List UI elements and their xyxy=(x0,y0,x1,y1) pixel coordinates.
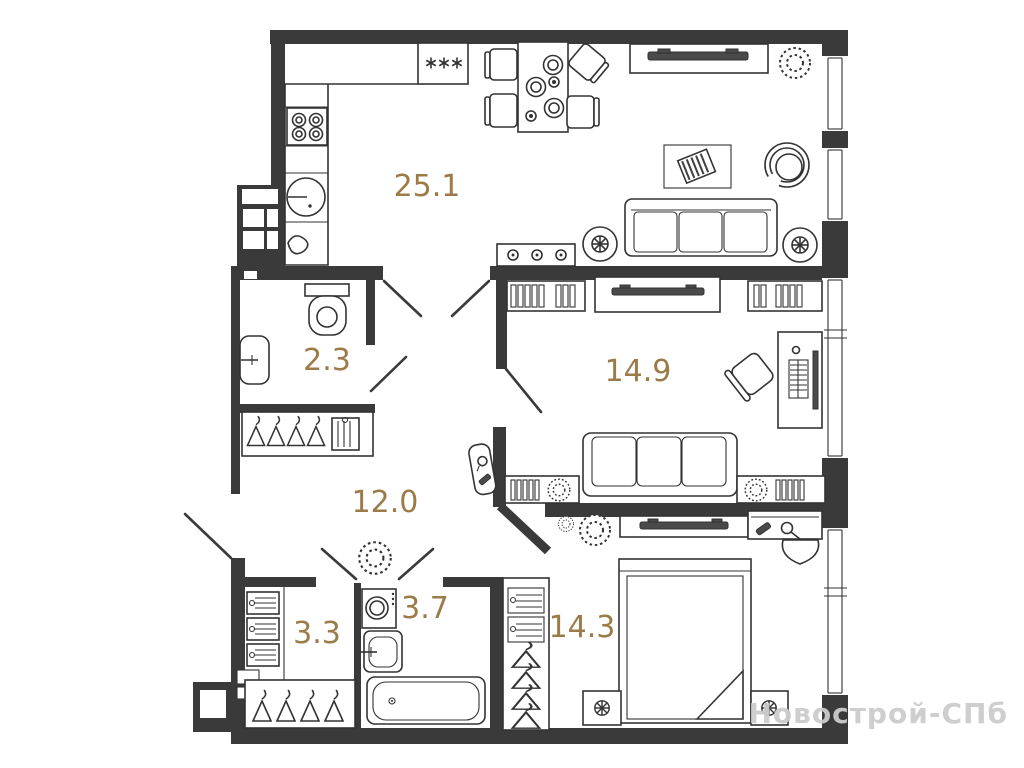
plant-icon xyxy=(580,515,610,545)
window xyxy=(823,528,848,695)
shelf-box-icon xyxy=(508,617,544,642)
tv-cabinet-icon xyxy=(595,277,720,312)
plant-icon xyxy=(559,517,574,532)
shelf-box-icon xyxy=(508,588,544,613)
plant-icon xyxy=(745,479,767,501)
hanger-rail xyxy=(245,680,355,728)
windows xyxy=(823,56,848,695)
sideboard-icon xyxy=(497,244,575,266)
stove-icon xyxy=(287,108,327,145)
sofa-icon xyxy=(583,433,737,496)
watermark: Новострой-СПб xyxy=(748,697,1008,730)
sink-icon xyxy=(240,336,269,384)
tv-cabinet-icon xyxy=(630,44,768,73)
shelf-box-icon xyxy=(247,592,279,614)
room-label-bathroom-small: 2.3 xyxy=(303,343,351,378)
chair-icon xyxy=(485,94,517,127)
keyboard-icon xyxy=(789,360,808,398)
plant-icon xyxy=(780,48,810,78)
bathtub-icon xyxy=(367,677,485,724)
desk-icon xyxy=(778,332,822,428)
shelf-box-icon xyxy=(247,618,279,640)
window xyxy=(823,56,848,131)
entry-closet xyxy=(242,412,373,456)
room-label-hallway: 12.0 xyxy=(352,485,419,520)
wardrobe-icon xyxy=(503,578,549,730)
dressing-table-icon xyxy=(748,511,822,539)
monitor-icon xyxy=(813,351,818,409)
side-table-icon xyxy=(583,227,617,261)
room-label-bedroom: 14.9 xyxy=(605,354,672,389)
bed-icon xyxy=(619,559,751,723)
bookshelf-icon xyxy=(748,281,822,311)
dining-table-icon xyxy=(518,42,568,132)
room-label-bathroom: 3.7 xyxy=(401,591,449,626)
room-label-closet: 3.3 xyxy=(293,616,341,651)
floor-plan-page: 25.1 2.3 14.9 12.0 3.3 3.7 14.3 Новостро… xyxy=(0,0,1024,768)
towel-box-icon xyxy=(332,418,359,451)
floor-plan-svg: 25.1 2.3 14.9 12.0 3.3 3.7 14.3 Новостро… xyxy=(0,0,1024,768)
kitchen-sink-icon xyxy=(287,178,325,216)
chair-icon xyxy=(485,49,517,80)
end-table-icon xyxy=(505,476,579,503)
end-table-icon xyxy=(737,476,825,503)
coffee-table-icon xyxy=(664,145,731,188)
washing-machine-icon xyxy=(362,589,396,628)
plant-icon xyxy=(548,479,570,501)
side-table-icon xyxy=(783,228,817,262)
plant-icon xyxy=(359,542,391,574)
window xyxy=(823,148,848,221)
nightstand-icon xyxy=(583,691,621,725)
tv-cabinet-icon xyxy=(620,516,748,537)
room-label-kitchen-living: 25.1 xyxy=(394,169,461,204)
chair-icon xyxy=(567,96,599,128)
fridge-icon xyxy=(418,43,468,84)
shelf-box-icon xyxy=(247,644,279,666)
toilet-icon xyxy=(305,284,349,335)
window xyxy=(823,278,848,458)
sofa-icon xyxy=(625,199,777,256)
bookshelf-icon xyxy=(507,281,585,311)
sink-icon xyxy=(361,631,402,672)
room-label-bedroom-master: 14.3 xyxy=(549,610,616,645)
